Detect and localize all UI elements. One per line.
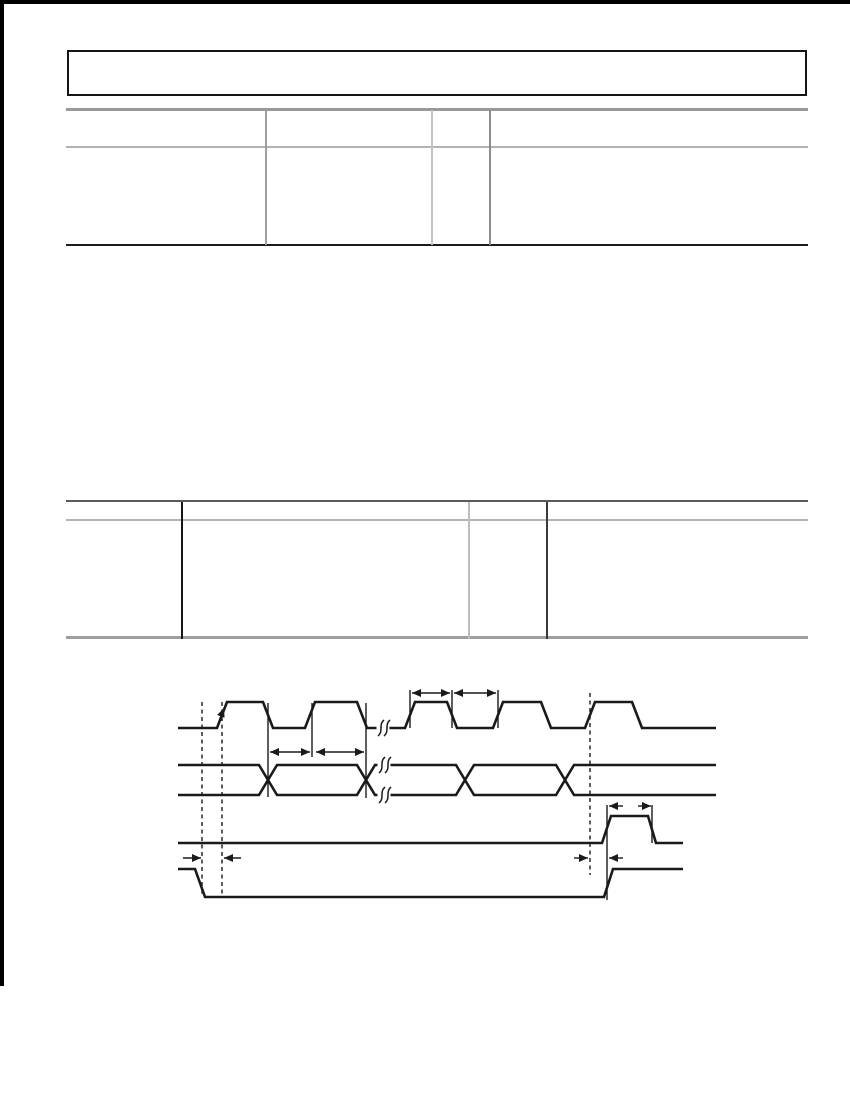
spec-table-2-hline	[66, 519, 808, 521]
scan-edge-top	[0, 0, 850, 4]
spec-table-1-vline	[431, 110, 433, 245]
spec-table-2-vline	[546, 502, 548, 639]
spec-table-1-hline	[66, 244, 808, 247]
spec-table-2-vline	[181, 502, 183, 639]
document-page	[0, 0, 850, 1100]
spec-table-1-hline	[66, 108, 808, 111]
spec-table-2-hline	[66, 636, 808, 639]
spec-table-2-hline	[66, 500, 808, 502]
timing-diagram	[0, 0, 850, 1100]
spec-table-1-vline	[489, 110, 491, 245]
clock-waveform	[178, 702, 716, 728]
bus-waveform-upper	[178, 765, 716, 795]
spec-table-1-vline	[265, 110, 267, 245]
spec-table-2-vline	[468, 502, 470, 639]
scan-edge-left	[0, 0, 4, 986]
bus-waveform-lower	[178, 765, 716, 795]
spec-table-1-hline	[66, 146, 808, 148]
